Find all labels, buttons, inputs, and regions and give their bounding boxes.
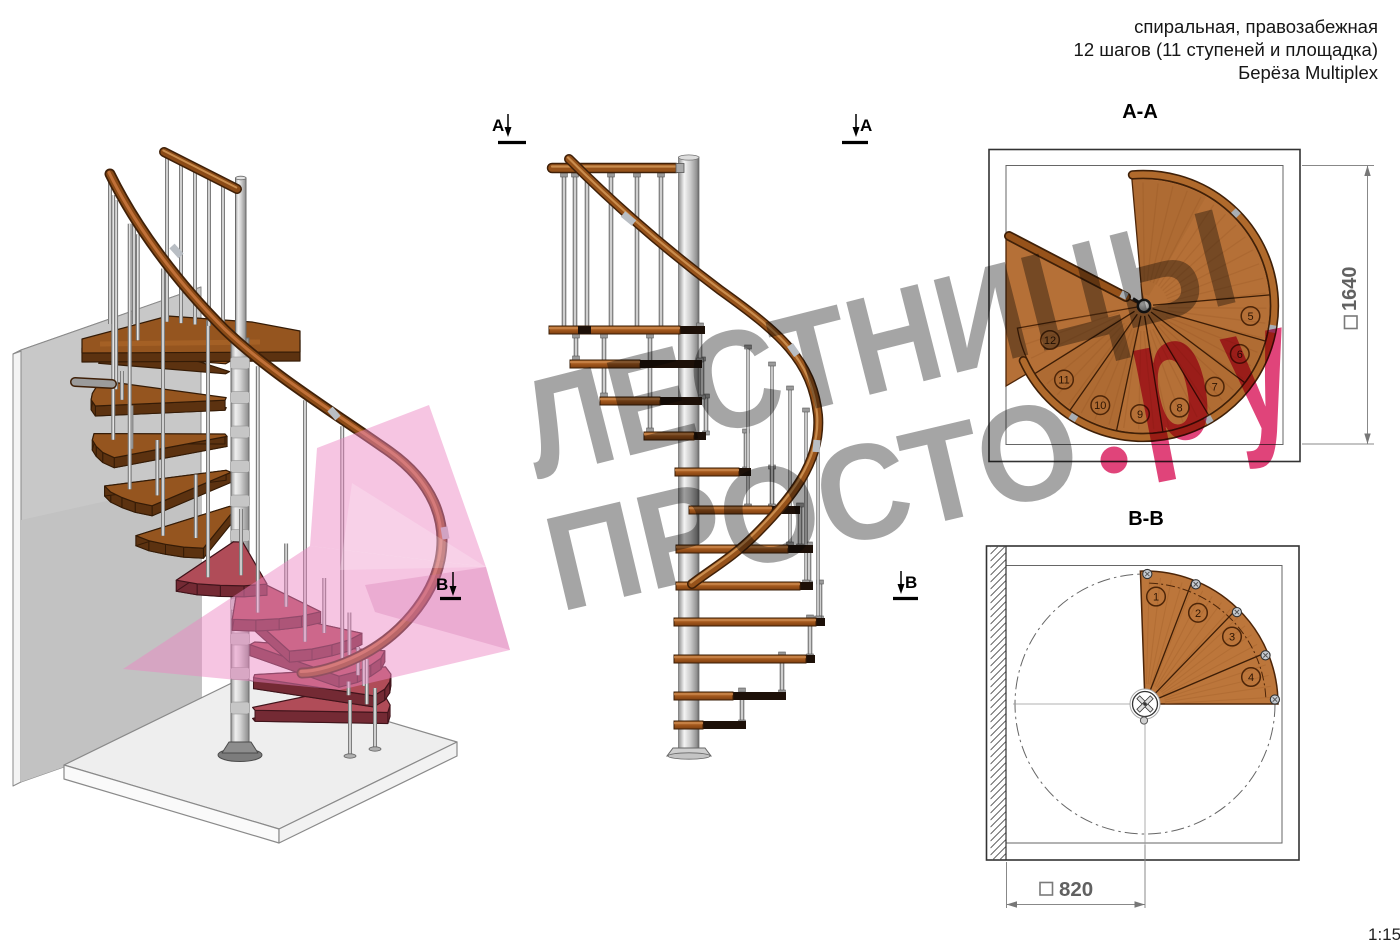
svg-text:1:15: 1:15 [1368, 925, 1400, 943]
svg-text:B: B [905, 573, 917, 592]
svg-text:1: 1 [1153, 592, 1159, 604]
svg-text:10: 10 [1094, 400, 1106, 412]
svg-text:2: 2 [1195, 608, 1201, 620]
svg-text:4: 4 [1248, 672, 1254, 684]
svg-text:12 шагов (11 ступеней и площад: 12 шагов (11 ступеней и площадка) [1074, 39, 1378, 60]
svg-text:спиральная, правозабежная: спиральная, правозабежная [1134, 16, 1378, 37]
svg-text:Берёза Multiplex: Берёза Multiplex [1238, 62, 1379, 83]
svg-text:A: A [860, 116, 872, 135]
svg-text:1640: 1640 [1339, 267, 1361, 312]
svg-text:3: 3 [1229, 632, 1235, 644]
svg-text:7: 7 [1212, 382, 1218, 394]
svg-text:A: A [492, 116, 504, 135]
svg-text:B: B [436, 575, 448, 594]
svg-text:820: 820 [1059, 878, 1093, 901]
svg-text:A-A: A-A [1122, 101, 1158, 123]
svg-text:B-B: B-B [1128, 508, 1164, 530]
